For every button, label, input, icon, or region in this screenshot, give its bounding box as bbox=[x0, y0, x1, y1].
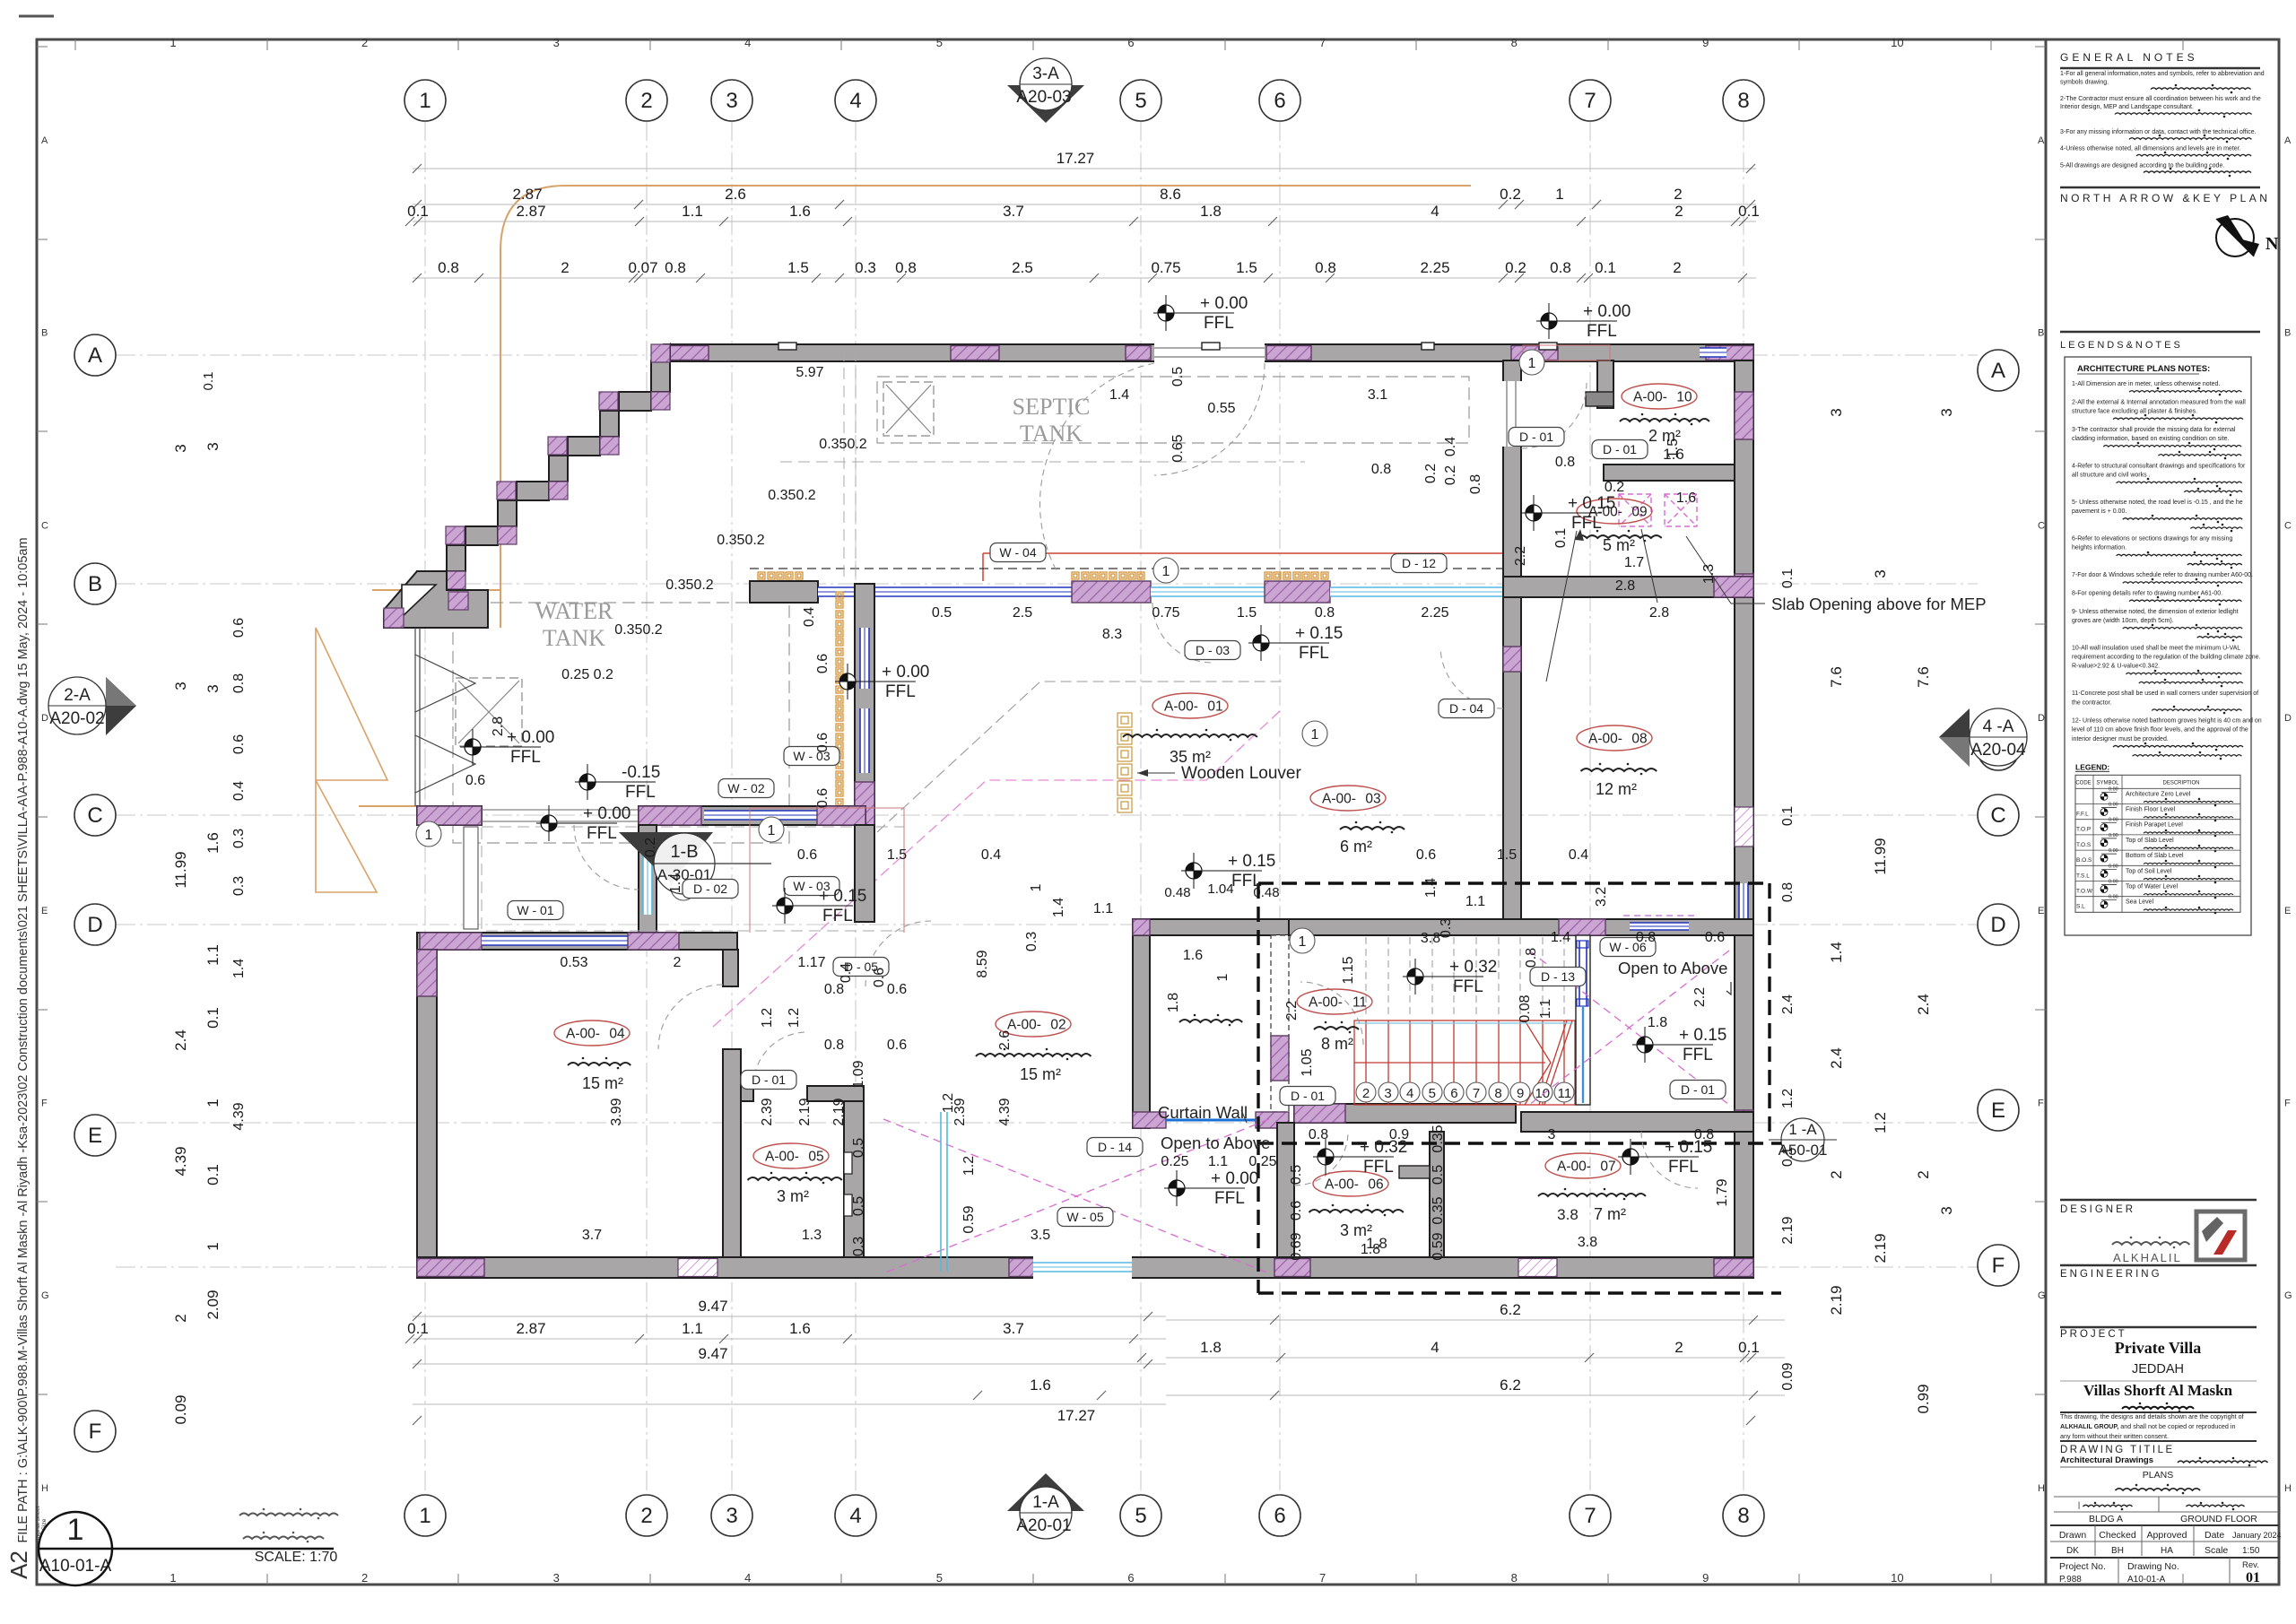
svg-text:8-For opening details refer to: 8-For opening details refer to drawing n… bbox=[2072, 590, 2222, 596]
svg-text:FFL: FFL bbox=[1587, 322, 1617, 341]
svg-text:Finish Parapet Level: Finish Parapet Level bbox=[2126, 822, 2183, 829]
svg-text:8: 8 bbox=[1511, 36, 1518, 49]
svg-text:D: D bbox=[41, 713, 48, 724]
svg-text:3: 3 bbox=[204, 684, 222, 692]
svg-text:0.1: 0.1 bbox=[1780, 1147, 1796, 1167]
svg-text:any form without their written: any form without their written consent. bbox=[2060, 1432, 2169, 1440]
svg-text:0.08: 0.08 bbox=[1518, 994, 1533, 1022]
svg-text:heights information.: heights information. bbox=[2072, 545, 2126, 551]
svg-text:ARCHITECTURE PLANS NOTES:: ARCHITECTURE PLANS NOTES: bbox=[2077, 364, 2210, 374]
svg-text:structure face excluding all p: structure face excluding all plaster & f… bbox=[2072, 408, 2197, 414]
svg-text:1.4: 1.4 bbox=[1051, 898, 1066, 917]
svg-text:1.8: 1.8 bbox=[1200, 203, 1222, 220]
svg-text:Original Sheet: Original Sheet bbox=[35, 1506, 41, 1542]
svg-text:+ 0.15: + 0.15 bbox=[1228, 852, 1275, 871]
svg-text:0.07: 0.07 bbox=[628, 259, 657, 276]
svg-text:0.35: 0.35 bbox=[1431, 1125, 1446, 1152]
svg-text:2: 2 bbox=[1674, 186, 1682, 203]
svg-text:10-All wall insulation used sh: 10-All wall insulation used shall be mee… bbox=[2072, 645, 2240, 651]
svg-text:2: 2 bbox=[1362, 1086, 1370, 1101]
svg-text:0.8: 0.8 bbox=[1780, 882, 1796, 902]
svg-text:5.97: 5.97 bbox=[796, 365, 823, 380]
svg-text:0.48: 0.48 bbox=[1164, 885, 1190, 900]
svg-text:1.5: 1.5 bbox=[1497, 847, 1517, 863]
svg-text:+ 0.00: + 0.00 bbox=[583, 804, 631, 823]
svg-text:Drawn: Drawn bbox=[2059, 1530, 2087, 1541]
svg-text:1.6: 1.6 bbox=[204, 832, 222, 854]
svg-text:1.5: 1.5 bbox=[1236, 259, 1257, 276]
svg-text:2-All the external & Internal: 2-All the external & Internal annotation… bbox=[2072, 399, 2246, 405]
svg-text:2-The Contractor must ensure a: 2-The Contractor must ensure all coordin… bbox=[2060, 96, 2261, 102]
svg-text:1: 1 bbox=[1311, 727, 1319, 743]
svg-text:3-The contractor shall provide: 3-The contractor shall provide the missi… bbox=[2072, 427, 2236, 433]
svg-text:0.6: 0.6 bbox=[231, 734, 247, 754]
svg-text:1.4: 1.4 bbox=[231, 959, 247, 978]
svg-text:E: E bbox=[2038, 906, 2044, 916]
svg-text:1.79: 1.79 bbox=[1715, 1178, 1730, 1206]
svg-text:3 m²: 3 m² bbox=[777, 1187, 809, 1205]
svg-text:0.59: 0.59 bbox=[1431, 1232, 1446, 1260]
svg-text:D: D bbox=[1990, 913, 2005, 937]
svg-text:interior designer must be prov: interior designer must be provided. bbox=[2072, 736, 2169, 743]
svg-text:Architectural Drawings: Architectural Drawings bbox=[2060, 1455, 2153, 1465]
svg-text:FFL: FFL bbox=[822, 907, 853, 925]
svg-text:0.6: 0.6 bbox=[465, 773, 485, 788]
svg-text:0.3: 0.3 bbox=[1439, 918, 1454, 938]
svg-text:3.8: 3.8 bbox=[1421, 931, 1440, 946]
svg-text:0.8: 0.8 bbox=[438, 259, 459, 276]
svg-text:5- Unless otherwise noted, the: 5- Unless otherwise noted, the road leve… bbox=[2072, 499, 2243, 506]
svg-text:W - 05: W - 05 bbox=[1066, 1210, 1103, 1224]
svg-text:BH: BH bbox=[2111, 1546, 2124, 1556]
svg-text:FFL: FFL bbox=[587, 824, 617, 843]
svg-text:1.1: 1.1 bbox=[1208, 1154, 1228, 1169]
svg-text:0.2: 0.2 bbox=[643, 838, 658, 857]
svg-text:all structure and civil works: all structure and civil works . bbox=[2072, 473, 2151, 479]
svg-text:2.6: 2.6 bbox=[997, 1030, 1013, 1050]
svg-text:pavement is + 0.00.: pavement is + 0.00. bbox=[2072, 508, 2126, 515]
svg-text:0.35: 0.35 bbox=[1431, 1196, 1446, 1224]
svg-text:SCALE: 1:70: SCALE: 1:70 bbox=[255, 1550, 338, 1565]
svg-text:5: 5 bbox=[1135, 89, 1146, 113]
svg-text:0.00: 0.00 bbox=[2109, 833, 2118, 838]
svg-text:FFL: FFL bbox=[510, 748, 541, 767]
svg-text:0.8: 0.8 bbox=[1636, 930, 1656, 945]
svg-text:cladding information, based on: cladding information, based on existing … bbox=[2072, 436, 2230, 442]
svg-text:7: 7 bbox=[1473, 1086, 1480, 1101]
svg-text:0.2: 0.2 bbox=[1500, 186, 1521, 203]
svg-text:9.47: 9.47 bbox=[698, 1345, 727, 1362]
svg-text:1:50: 1:50 bbox=[2242, 1546, 2260, 1556]
svg-text:1.2: 1.2 bbox=[941, 1093, 956, 1113]
svg-text:A-00-: A-00- bbox=[1325, 1177, 1359, 1193]
svg-text:FFL: FFL bbox=[1363, 1158, 1394, 1177]
svg-text:F.F.L: F.F.L bbox=[2076, 812, 2089, 818]
svg-text:1.5: 1.5 bbox=[787, 259, 809, 276]
svg-text:+ 0.00: + 0.00 bbox=[507, 728, 554, 747]
svg-text:N: N bbox=[2266, 234, 2279, 254]
svg-text:3: 3 bbox=[726, 89, 737, 113]
svg-text:2: 2 bbox=[561, 259, 569, 276]
svg-text:4: 4 bbox=[744, 1571, 751, 1585]
svg-text:Drawing No.: Drawing No. bbox=[2127, 1561, 2179, 1572]
svg-text:W - 04: W - 04 bbox=[999, 545, 1036, 560]
svg-text:0.48: 0.48 bbox=[1253, 885, 1279, 900]
svg-text:A-00-: A-00- bbox=[566, 1027, 600, 1042]
svg-text:D - 01: D - 01 bbox=[1519, 430, 1553, 444]
svg-text:+ 0.00: + 0.00 bbox=[1200, 294, 1248, 313]
svg-text:A20-03: A20-03 bbox=[1016, 88, 1071, 107]
svg-text:0.8: 0.8 bbox=[1524, 948, 1539, 968]
svg-text:2.4: 2.4 bbox=[1828, 1047, 1845, 1069]
svg-text:Top of Slab Level: Top of Slab Level bbox=[2126, 838, 2174, 844]
svg-text:D - 03: D - 03 bbox=[1196, 643, 1230, 657]
svg-text:1.6: 1.6 bbox=[1030, 1376, 1051, 1394]
svg-text:0.2: 0.2 bbox=[1605, 480, 1624, 495]
svg-text:Interior design, MEP and Lands: Interior design, MEP and Landscape consu… bbox=[2060, 104, 2194, 110]
svg-text:0.5: 0.5 bbox=[1170, 367, 1186, 386]
svg-text:This drawing, the designs and: This drawing, the designs and details sh… bbox=[2060, 1412, 2244, 1420]
svg-text:D: D bbox=[2038, 713, 2045, 724]
svg-text:Sea Level: Sea Level bbox=[2126, 899, 2154, 906]
svg-text:2.6: 2.6 bbox=[725, 186, 746, 203]
svg-text:3.7: 3.7 bbox=[582, 1228, 602, 1243]
svg-text:C: C bbox=[41, 520, 48, 531]
svg-text:D: D bbox=[87, 913, 102, 937]
svg-text:1.4: 1.4 bbox=[1109, 387, 1129, 403]
svg-text:11-Concrete post shall be used: 11-Concrete post shall be used in wall c… bbox=[2072, 690, 2258, 697]
svg-text:0.350.2: 0.350.2 bbox=[768, 488, 815, 503]
svg-text:3: 3 bbox=[1384, 1086, 1391, 1101]
svg-text:A20-04: A20-04 bbox=[1970, 741, 2026, 760]
svg-text:0.3: 0.3 bbox=[231, 829, 247, 848]
svg-text:DESCRIPTION: DESCRIPTION bbox=[2162, 780, 2199, 786]
svg-text:3: 3 bbox=[1872, 569, 1889, 578]
svg-text:3.7: 3.7 bbox=[1003, 1320, 1024, 1337]
svg-text:6: 6 bbox=[1274, 89, 1285, 113]
svg-text:1.5: 1.5 bbox=[887, 847, 907, 863]
svg-text:1.2: 1.2 bbox=[760, 1008, 775, 1028]
svg-text:0.3: 0.3 bbox=[1024, 932, 1039, 951]
svg-text:0.1: 0.1 bbox=[407, 1320, 429, 1337]
svg-text:B.O.S: B.O.S bbox=[2076, 857, 2092, 864]
svg-text:0.5: 0.5 bbox=[851, 1196, 866, 1216]
svg-text:0.75: 0.75 bbox=[1152, 605, 1179, 621]
svg-text:1.2: 1.2 bbox=[1780, 1089, 1796, 1108]
svg-text:Slab Opening above for MEP: Slab Opening above for MEP bbox=[1771, 595, 1987, 613]
svg-text:G: G bbox=[41, 1290, 49, 1301]
svg-text:1.8: 1.8 bbox=[1648, 1015, 1667, 1030]
svg-text:D - 02: D - 02 bbox=[693, 881, 727, 896]
svg-text:0.09: 0.09 bbox=[172, 1394, 189, 1424]
svg-text:Top of Soil Level: Top of Soil Level bbox=[2126, 868, 2172, 874]
svg-text:1: 1 bbox=[425, 828, 433, 843]
svg-text:8: 8 bbox=[1511, 1571, 1518, 1585]
svg-text:3-A: 3-A bbox=[1032, 65, 1059, 83]
svg-text:D: D bbox=[2284, 713, 2292, 724]
svg-text:Open to Above: Open to Above bbox=[1618, 959, 1727, 977]
svg-text:12 m²: 12 m² bbox=[1596, 780, 1637, 798]
svg-text:0.1: 0.1 bbox=[1553, 528, 1569, 548]
svg-text:4-Refer to structural consulta: 4-Refer to structural consultant drawing… bbox=[2072, 463, 2246, 469]
svg-text:1.8: 1.8 bbox=[1200, 1339, 1222, 1356]
svg-text:G: G bbox=[2284, 1290, 2292, 1301]
svg-text:Villas Shorft Al Maskn: Villas Shorft Al Maskn bbox=[2083, 1382, 2233, 1399]
svg-text:0.6: 0.6 bbox=[815, 733, 831, 752]
svg-text:6.2: 6.2 bbox=[1500, 1376, 1521, 1394]
svg-text:Private Villa: Private Villa bbox=[2115, 1339, 2201, 1357]
svg-text:A-00-: A-00- bbox=[1633, 390, 1667, 405]
svg-text:3.7: 3.7 bbox=[1003, 203, 1024, 220]
svg-text:1: 1 bbox=[419, 1504, 430, 1528]
svg-text:3: 3 bbox=[1938, 1206, 1955, 1214]
svg-text:1: 1 bbox=[204, 1099, 222, 1107]
svg-text:T.O.W: T.O.W bbox=[2076, 889, 2093, 895]
svg-text:2.87: 2.87 bbox=[516, 1320, 545, 1337]
svg-text:7: 7 bbox=[1319, 36, 1326, 49]
svg-text:6 m²: 6 m² bbox=[1340, 838, 1372, 855]
svg-text:0.6: 0.6 bbox=[1289, 1201, 1304, 1220]
svg-text:F: F bbox=[2038, 1099, 2044, 1109]
svg-text:7-For door & Windows schedule: 7-For door & Windows schedule refer to d… bbox=[2072, 572, 2253, 578]
svg-text:Open to Above: Open to Above bbox=[1161, 1133, 1270, 1152]
svg-text:B: B bbox=[88, 572, 102, 596]
svg-text:3.5: 3.5 bbox=[1031, 1228, 1050, 1243]
svg-text:1.1: 1.1 bbox=[1465, 894, 1485, 909]
svg-text:2.39: 2.39 bbox=[760, 1098, 775, 1125]
svg-text:10: 10 bbox=[1891, 1571, 1903, 1585]
svg-text:1.4: 1.4 bbox=[1828, 942, 1845, 963]
svg-text:5-All drawings are designed ac: 5-All drawings are designed according to… bbox=[2060, 162, 2224, 169]
svg-text:FFL: FFL bbox=[1299, 644, 1329, 663]
svg-text:05: 05 bbox=[808, 1150, 823, 1165]
svg-text:D - 13: D - 13 bbox=[1541, 969, 1575, 984]
svg-text:1.6: 1.6 bbox=[1183, 948, 1203, 963]
svg-text:3: 3 bbox=[172, 682, 189, 690]
svg-text:0.2: 0.2 bbox=[1505, 259, 1526, 276]
svg-text:E: E bbox=[41, 906, 48, 916]
svg-text:GROUND FLOOR: GROUND FLOOR bbox=[2180, 1514, 2257, 1524]
svg-text:Project No.: Project No. bbox=[2059, 1561, 2106, 1572]
svg-text:1.6: 1.6 bbox=[789, 1320, 811, 1337]
svg-text:2: 2 bbox=[640, 89, 652, 113]
svg-text:|: | bbox=[2078, 1500, 2080, 1509]
svg-text:5: 5 bbox=[1135, 1504, 1146, 1528]
svg-text:3: 3 bbox=[553, 1571, 560, 1585]
svg-text:0.00: 0.00 bbox=[2109, 895, 2118, 900]
svg-text:G: G bbox=[2038, 1290, 2046, 1301]
svg-text:3-For any missing information: 3-For any missing information or data, c… bbox=[2060, 129, 2257, 135]
svg-text:10: 10 bbox=[1676, 390, 1692, 405]
svg-text:W - 02: W - 02 bbox=[727, 781, 764, 795]
svg-text:LEGEND:: LEGEND: bbox=[2075, 762, 2109, 771]
svg-text:T.S.L: T.S.L bbox=[2076, 873, 2090, 879]
svg-text:0.00: 0.00 bbox=[2109, 864, 2118, 869]
svg-text:3: 3 bbox=[172, 444, 189, 452]
svg-text:0.8: 0.8 bbox=[1694, 1127, 1714, 1142]
svg-text:4: 4 bbox=[1431, 203, 1439, 220]
svg-text:7: 7 bbox=[1319, 1571, 1326, 1585]
svg-text:0.1: 0.1 bbox=[407, 203, 429, 220]
svg-text:0.4: 0.4 bbox=[802, 607, 817, 627]
svg-text:0.59: 0.59 bbox=[961, 1205, 977, 1233]
svg-text:NORTH ARROW &KEY PLAN: NORTH ARROW &KEY PLAN bbox=[2060, 192, 2270, 204]
svg-text:1: 1 bbox=[1299, 934, 1307, 950]
svg-text:level of 110 cm above finish f: level of 110 cm above finish floor level… bbox=[2072, 727, 2248, 734]
svg-text:H: H bbox=[2038, 1483, 2045, 1494]
svg-text:1: 1 bbox=[1215, 973, 1231, 981]
svg-text:1.3: 1.3 bbox=[1701, 564, 1717, 584]
svg-text:1.2: 1.2 bbox=[961, 1156, 977, 1176]
svg-text:15 m²: 15 m² bbox=[582, 1074, 623, 1092]
svg-text:4: 4 bbox=[849, 1504, 861, 1528]
svg-text:1.5: 1.5 bbox=[1237, 605, 1257, 621]
svg-text:0.8: 0.8 bbox=[1550, 259, 1571, 276]
svg-text:0.00: 0.00 bbox=[2109, 848, 2118, 854]
svg-text:10: 10 bbox=[1891, 36, 1903, 49]
svg-text:0.8: 0.8 bbox=[1555, 455, 1575, 470]
svg-text:DESIGNER: DESIGNER bbox=[2060, 1204, 2135, 1215]
svg-text:0.6: 0.6 bbox=[887, 1038, 907, 1053]
svg-text:1.4: 1.4 bbox=[668, 873, 683, 893]
svg-text:C: C bbox=[2038, 520, 2045, 531]
svg-text:FFL: FFL bbox=[625, 783, 656, 802]
svg-text:1.6: 1.6 bbox=[1676, 491, 1696, 506]
svg-text:0.2: 0.2 bbox=[1443, 465, 1458, 485]
svg-text:2: 2 bbox=[361, 36, 368, 49]
svg-text:FFL: FFL bbox=[1204, 314, 1234, 333]
svg-text:FFL: FFL bbox=[885, 682, 916, 701]
svg-text:06: 06 bbox=[1368, 1177, 1383, 1193]
svg-text:2.19: 2.19 bbox=[831, 1098, 847, 1125]
svg-text:4: 4 bbox=[744, 36, 751, 49]
svg-text:A10-01-A: A10-01-A bbox=[2127, 1575, 2166, 1585]
svg-text:F: F bbox=[41, 1099, 48, 1109]
svg-text:2: 2 bbox=[361, 1571, 368, 1585]
svg-text:0.25 0.2: 0.25 0.2 bbox=[561, 667, 613, 682]
svg-text:2.8: 2.8 bbox=[1615, 578, 1635, 594]
svg-text:F: F bbox=[89, 1420, 102, 1444]
svg-text:1-All Dimension are in meter,: 1-All Dimension are in meter, unless oth… bbox=[2072, 381, 2220, 387]
svg-text:requirement according to the r: requirement according to the regulation … bbox=[2072, 655, 2261, 661]
svg-text:8.6: 8.6 bbox=[1160, 186, 1181, 203]
svg-text:1.4: 1.4 bbox=[1551, 930, 1570, 945]
svg-text:1.2: 1.2 bbox=[1872, 1112, 1889, 1133]
svg-text:ALKHALIL GROUP, and shall not: ALKHALIL GROUP, and shall not be copied … bbox=[2060, 1422, 2236, 1430]
svg-text:Curtain Wall: Curtain Wall bbox=[1158, 1103, 1248, 1122]
svg-text:2.5: 2.5 bbox=[1013, 605, 1032, 621]
svg-text:D - 01: D - 01 bbox=[1603, 442, 1637, 456]
svg-text:F: F bbox=[1992, 1254, 2005, 1278]
svg-text:0.8: 0.8 bbox=[1371, 462, 1391, 477]
svg-text:1.1: 1.1 bbox=[682, 1320, 703, 1337]
svg-text:01: 01 bbox=[2246, 1570, 2260, 1585]
svg-text:5: 5 bbox=[1429, 1086, 1436, 1101]
svg-text:E: E bbox=[2284, 906, 2291, 916]
svg-text:11.99: 11.99 bbox=[1872, 838, 1889, 874]
svg-text:1: 1 bbox=[768, 823, 776, 838]
svg-text:Wooden Louver: Wooden Louver bbox=[1181, 764, 1301, 783]
svg-text:04: 04 bbox=[609, 1027, 625, 1042]
svg-text:1 -A: 1 -A bbox=[1788, 1121, 1817, 1138]
svg-text:D - 14: D - 14 bbox=[1098, 1140, 1132, 1154]
svg-text:2: 2 bbox=[1674, 1339, 1683, 1356]
svg-text:0.55: 0.55 bbox=[1207, 401, 1235, 416]
svg-text:4 -A: 4 -A bbox=[1983, 717, 2014, 736]
svg-text:1: 1 bbox=[1555, 186, 1563, 203]
svg-text:0.8: 0.8 bbox=[895, 259, 917, 276]
svg-text:0.4: 0.4 bbox=[1569, 847, 1588, 863]
svg-text:+ 0.15: + 0.15 bbox=[819, 887, 866, 906]
svg-text:2.8: 2.8 bbox=[491, 716, 506, 736]
svg-text:0.53: 0.53 bbox=[560, 955, 587, 970]
svg-text:1.2: 1.2 bbox=[787, 1008, 802, 1028]
svg-text:Scale: Scale bbox=[2205, 1545, 2228, 1556]
svg-text:+ 0.15: + 0.15 bbox=[1679, 1026, 1726, 1045]
svg-text:2: 2 bbox=[1828, 1170, 1845, 1178]
svg-text:FFL: FFL bbox=[1571, 514, 1602, 533]
svg-text:02: 02 bbox=[1050, 1018, 1065, 1033]
svg-text:0.350.2: 0.350.2 bbox=[819, 437, 866, 452]
svg-text:9.47: 9.47 bbox=[698, 1298, 727, 1315]
svg-text:0.99: 0.99 bbox=[1915, 1384, 1932, 1413]
svg-text:D - 01: D - 01 bbox=[752, 1073, 786, 1087]
svg-text:1.5: 1.5 bbox=[1665, 439, 1681, 458]
svg-text:+ 0.15: + 0.15 bbox=[1568, 494, 1615, 513]
svg-text:2-A: 2-A bbox=[64, 686, 91, 705]
svg-text:Date: Date bbox=[2205, 1530, 2224, 1541]
svg-text:0.69: 0.69 bbox=[1289, 1232, 1304, 1260]
svg-text:1: 1 bbox=[1029, 883, 1044, 891]
svg-text:4.39: 4.39 bbox=[997, 1098, 1013, 1125]
svg-text:0.1: 0.1 bbox=[1595, 259, 1616, 276]
svg-text:0.1: 0.1 bbox=[1738, 203, 1760, 220]
svg-text:B: B bbox=[2038, 328, 2044, 339]
svg-text:07: 07 bbox=[1600, 1159, 1615, 1175]
svg-text:E: E bbox=[88, 1124, 102, 1148]
svg-text:A-00-: A-00- bbox=[1322, 792, 1356, 807]
svg-text:FFL: FFL bbox=[1214, 1189, 1245, 1208]
svg-text:0.00: 0.00 bbox=[2109, 818, 2118, 823]
svg-text:0.1: 0.1 bbox=[204, 1164, 222, 1185]
svg-text:0.25: 0.25 bbox=[1248, 1154, 1276, 1169]
svg-text:A: A bbox=[2038, 135, 2045, 146]
svg-text:D - 04: D - 04 bbox=[1449, 701, 1483, 716]
svg-text:Top of Water Level: Top of Water Level bbox=[2126, 884, 2179, 890]
svg-text:1: 1 bbox=[170, 36, 176, 49]
svg-text:8: 8 bbox=[1737, 1504, 1749, 1528]
svg-text:2.19: 2.19 bbox=[1780, 1216, 1796, 1244]
svg-text:1.1: 1.1 bbox=[1093, 901, 1113, 916]
svg-text:2.19: 2.19 bbox=[1828, 1285, 1845, 1315]
svg-text:8.3: 8.3 bbox=[1102, 627, 1122, 642]
svg-text:1: 1 bbox=[170, 1571, 176, 1585]
svg-text:0.8: 0.8 bbox=[1315, 259, 1336, 276]
svg-text:6: 6 bbox=[1127, 36, 1134, 49]
svg-text:Approved: Approved bbox=[2147, 1530, 2187, 1541]
svg-text:08: 08 bbox=[1631, 732, 1647, 747]
svg-text:A-00-: A-00- bbox=[1164, 699, 1198, 715]
svg-text:A20-02: A20-02 bbox=[49, 709, 104, 728]
svg-text:C: C bbox=[1990, 803, 2005, 828]
svg-text:0.1: 0.1 bbox=[1780, 569, 1796, 588]
svg-text:4: 4 bbox=[1431, 1339, 1439, 1356]
svg-text:3: 3 bbox=[1828, 408, 1845, 416]
svg-text:4.39: 4.39 bbox=[172, 1146, 189, 1176]
svg-text:01: 01 bbox=[1207, 699, 1222, 715]
svg-text:03: 03 bbox=[1365, 792, 1380, 807]
svg-text:0.5: 0.5 bbox=[851, 1138, 866, 1158]
